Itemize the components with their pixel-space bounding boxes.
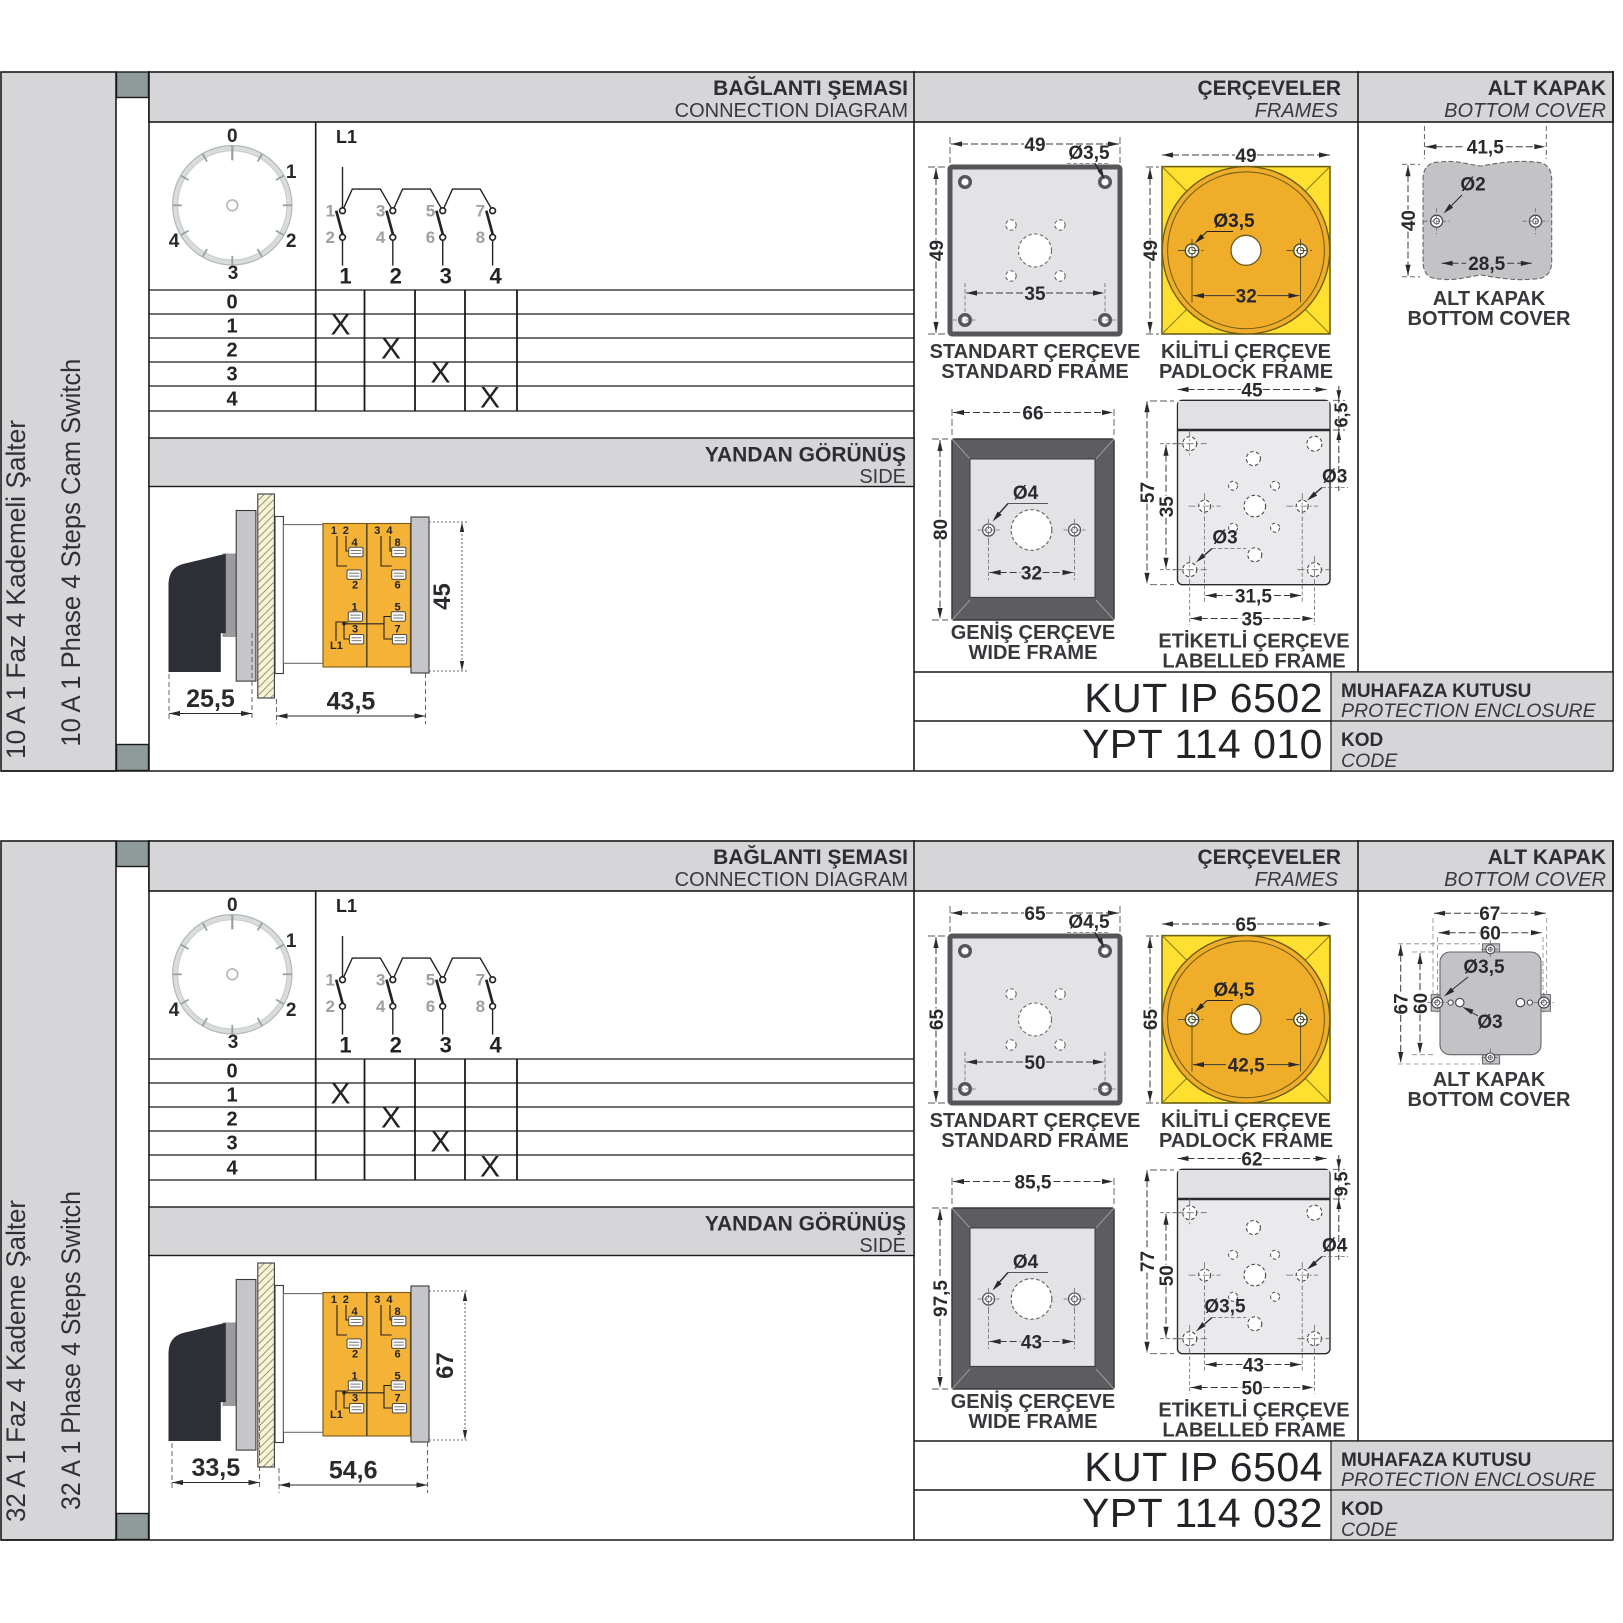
svg-text:BOTTOM COVER: BOTTOM COVER	[1444, 100, 1606, 122]
svg-text:2: 2	[226, 1109, 237, 1131]
svg-text:6: 6	[394, 1349, 400, 1361]
svg-text:X: X	[480, 382, 500, 415]
svg-text:4: 4	[226, 1158, 238, 1180]
svg-text:2: 2	[352, 580, 358, 592]
svg-text:BOTTOM COVER: BOTTOM COVER	[1408, 308, 1572, 330]
svg-text:85,5: 85,5	[1015, 1172, 1052, 1193]
svg-text:WIDE FRAME: WIDE FRAME	[969, 642, 1098, 664]
svg-text:STANDART ÇERÇEVE: STANDART ÇERÇEVE	[930, 1110, 1141, 1132]
svg-text:YPT 114 010: YPT 114 010	[1082, 721, 1323, 767]
svg-text:YANDAN GÖRÜNÜŞ: YANDAN GÖRÜNÜŞ	[705, 1213, 906, 1236]
svg-text:45: 45	[429, 583, 456, 610]
svg-text:Ø3,5: Ø3,5	[1463, 957, 1505, 978]
svg-text:CODE: CODE	[1341, 1519, 1398, 1541]
svg-text:3: 3	[228, 1032, 239, 1053]
svg-text:L1: L1	[330, 1409, 343, 1421]
svg-text:BOTTOM COVER: BOTTOM COVER	[1444, 869, 1606, 891]
svg-text:YPT 114 032: YPT 114 032	[1082, 1490, 1323, 1536]
svg-text:4: 4	[376, 228, 386, 247]
svg-text:50: 50	[1157, 1265, 1178, 1286]
svg-text:STANDARD FRAME: STANDARD FRAME	[941, 361, 1128, 383]
svg-text:4: 4	[489, 264, 502, 289]
svg-text:7: 7	[394, 624, 400, 636]
svg-text:CONNECTION DIAGRAM: CONNECTION DIAGRAM	[675, 869, 908, 891]
svg-text:50: 50	[1024, 1053, 1045, 1074]
svg-text:PROTECTION ENCLOSURE: PROTECTION ENCLOSURE	[1341, 1469, 1597, 1491]
svg-text:35: 35	[1242, 609, 1264, 630]
svg-text:4: 4	[376, 997, 386, 1016]
svg-text:2: 2	[326, 228, 335, 247]
svg-text:Ø3,5: Ø3,5	[1204, 1297, 1246, 1318]
svg-text:65: 65	[1024, 904, 1046, 925]
svg-text:ALT KAPAK: ALT KAPAK	[1433, 1069, 1546, 1091]
svg-text:BAĞLANTI ŞEMASI: BAĞLANTI ŞEMASI	[713, 76, 908, 100]
svg-text:8: 8	[394, 537, 400, 549]
svg-text:X: X	[381, 333, 401, 366]
svg-text:62: 62	[1241, 1149, 1262, 1170]
svg-text:LABELLED FRAME: LABELLED FRAME	[1162, 651, 1345, 673]
svg-text:8: 8	[476, 997, 485, 1016]
svg-text:4: 4	[352, 537, 359, 549]
svg-text:60: 60	[1411, 993, 1432, 1014]
svg-text:43: 43	[1021, 1332, 1042, 1353]
svg-text:43,5: 43,5	[327, 688, 376, 716]
svg-text:7: 7	[476, 201, 485, 220]
svg-text:L1: L1	[336, 127, 357, 147]
svg-text:2: 2	[343, 1294, 349, 1306]
svg-text:0: 0	[227, 126, 238, 147]
svg-text:5: 5	[394, 1371, 400, 1383]
svg-text:80: 80	[931, 519, 952, 540]
svg-text:Ø3: Ø3	[1477, 1012, 1502, 1033]
svg-text:54,6: 54,6	[329, 1457, 378, 1485]
svg-text:3: 3	[376, 201, 385, 220]
svg-text:1: 1	[352, 1371, 358, 1383]
svg-text:Ø2: Ø2	[1460, 175, 1485, 196]
svg-text:BAĞLANTI ŞEMASI: BAĞLANTI ŞEMASI	[713, 845, 908, 869]
svg-text:MUHAFAZA KUTUSU: MUHAFAZA KUTUSU	[1341, 681, 1531, 702]
svg-text:10 A 1 Phase 4 Steps Cam Switc: 10 A 1 Phase 4 Steps Cam Switch	[56, 359, 86, 747]
svg-text:SIDE: SIDE	[859, 466, 906, 488]
svg-text:5: 5	[394, 602, 400, 614]
svg-text:KUT IP 6504: KUT IP 6504	[1084, 1444, 1323, 1490]
svg-text:KİLİTLİ ÇERÇEVE: KİLİTLİ ÇERÇEVE	[1161, 340, 1331, 363]
svg-text:X: X	[330, 1078, 350, 1111]
svg-text:ALT KAPAK: ALT KAPAK	[1488, 846, 1606, 869]
svg-text:1: 1	[339, 1033, 351, 1058]
svg-text:49: 49	[1235, 146, 1256, 167]
svg-text:CONNECTION DIAGRAM: CONNECTION DIAGRAM	[675, 100, 908, 122]
svg-text:3: 3	[374, 525, 380, 537]
svg-text:66: 66	[1022, 403, 1043, 424]
svg-text:67: 67	[1392, 993, 1413, 1014]
svg-text:3: 3	[440, 1033, 452, 1058]
svg-text:KOD: KOD	[1341, 730, 1383, 751]
svg-text:60: 60	[1480, 924, 1501, 945]
svg-text:2: 2	[352, 1349, 358, 1361]
svg-text:3: 3	[226, 1133, 237, 1155]
svg-text:31,5: 31,5	[1235, 586, 1272, 607]
svg-text:50: 50	[1242, 1378, 1263, 1399]
svg-text:ÇERÇEVELER: ÇERÇEVELER	[1197, 846, 1341, 869]
svg-text:1: 1	[226, 316, 237, 338]
svg-text:1: 1	[326, 201, 335, 220]
svg-text:FRAMES: FRAMES	[1255, 100, 1339, 122]
svg-text:Ø4,5: Ø4,5	[1213, 980, 1255, 1001]
svg-text:2: 2	[226, 340, 237, 362]
svg-text:Ø3,5: Ø3,5	[1068, 143, 1110, 164]
svg-text:4: 4	[489, 1033, 502, 1058]
svg-text:41,5: 41,5	[1467, 138, 1504, 159]
svg-text:3: 3	[376, 970, 385, 989]
svg-text:45: 45	[1241, 380, 1263, 401]
svg-text:7: 7	[476, 970, 485, 989]
svg-text:28,5: 28,5	[1468, 254, 1505, 275]
svg-text:3: 3	[228, 263, 239, 284]
svg-text:32: 32	[1021, 563, 1042, 584]
svg-text:43: 43	[1243, 1355, 1264, 1376]
svg-text:YANDAN GÖRÜNÜŞ: YANDAN GÖRÜNÜŞ	[705, 444, 906, 467]
svg-text:32 A 1 Phase 4 Steps Switch: 32 A 1 Phase 4 Steps Switch	[56, 1191, 86, 1510]
svg-text:5: 5	[426, 201, 435, 220]
svg-text:3: 3	[226, 364, 237, 386]
svg-text:25,5: 25,5	[186, 685, 235, 713]
svg-text:GENİŞ ÇERÇEVE: GENİŞ ÇERÇEVE	[951, 621, 1115, 644]
svg-text:4: 4	[386, 1294, 393, 1306]
svg-text:Ø4: Ø4	[1013, 483, 1039, 504]
svg-text:4: 4	[226, 389, 238, 411]
svg-text:ÇERÇEVELER: ÇERÇEVELER	[1197, 77, 1341, 100]
svg-text:65: 65	[1141, 1009, 1162, 1031]
svg-text:CODE: CODE	[1341, 750, 1398, 772]
svg-text:Ø4: Ø4	[1322, 1236, 1348, 1257]
svg-text:PROTECTION ENCLOSURE: PROTECTION ENCLOSURE	[1341, 700, 1597, 722]
svg-text:STANDART ÇERÇEVE: STANDART ÇERÇEVE	[930, 341, 1141, 363]
svg-text:4: 4	[386, 525, 393, 537]
svg-text:2: 2	[286, 1000, 297, 1021]
svg-text:97,5: 97,5	[931, 1280, 952, 1317]
svg-text:3: 3	[352, 624, 358, 636]
svg-text:Ø4,5: Ø4,5	[1068, 912, 1110, 933]
svg-text:WIDE FRAME: WIDE FRAME	[969, 1411, 1098, 1433]
svg-text:X: X	[480, 1151, 500, 1184]
svg-text:1: 1	[286, 162, 297, 183]
svg-text:1: 1	[286, 931, 297, 952]
svg-text:X: X	[430, 357, 450, 390]
svg-text:KUT IP 6502: KUT IP 6502	[1084, 675, 1323, 721]
svg-text:MUHAFAZA KUTUSU: MUHAFAZA KUTUSU	[1341, 1450, 1531, 1471]
svg-text:6: 6	[426, 997, 435, 1016]
svg-text:35: 35	[1024, 284, 1046, 305]
svg-text:Ø3: Ø3	[1322, 467, 1347, 488]
svg-text:67: 67	[432, 1352, 459, 1379]
svg-text:49: 49	[1024, 135, 1045, 156]
svg-text:SIDE: SIDE	[859, 1235, 906, 1257]
svg-text:42,5: 42,5	[1228, 1055, 1265, 1076]
svg-text:KOD: KOD	[1341, 1499, 1383, 1520]
svg-text:Ø3,5: Ø3,5	[1213, 211, 1255, 232]
svg-text:4: 4	[169, 231, 180, 252]
svg-text:4: 4	[169, 1000, 180, 1021]
svg-text:4: 4	[352, 1306, 359, 1318]
svg-text:FRAMES: FRAMES	[1255, 869, 1339, 891]
svg-text:2: 2	[286, 231, 297, 252]
svg-text:X: X	[430, 1126, 450, 1159]
svg-text:2: 2	[390, 264, 402, 289]
svg-text:1: 1	[352, 602, 358, 614]
svg-text:8: 8	[476, 228, 485, 247]
svg-text:6: 6	[394, 580, 400, 592]
svg-text:ETİKETLİ ÇERÇEVE: ETİKETLİ ÇERÇEVE	[1158, 630, 1349, 653]
svg-text:0: 0	[227, 895, 238, 916]
svg-text:LABELLED FRAME: LABELLED FRAME	[1162, 1420, 1345, 1442]
svg-text:49: 49	[1141, 240, 1162, 261]
svg-text:1: 1	[331, 1294, 337, 1306]
svg-text:ALT KAPAK: ALT KAPAK	[1433, 288, 1546, 310]
svg-text:L1: L1	[330, 640, 343, 652]
svg-text:77: 77	[1138, 1251, 1159, 1272]
svg-text:57: 57	[1138, 482, 1159, 503]
svg-text:40: 40	[1399, 210, 1420, 231]
svg-text:65: 65	[927, 1009, 948, 1031]
svg-text:X: X	[330, 309, 350, 342]
svg-text:1: 1	[339, 264, 351, 289]
svg-text:2: 2	[390, 1033, 402, 1058]
svg-text:0: 0	[226, 1061, 237, 1083]
svg-text:67: 67	[1479, 904, 1500, 925]
svg-text:KİLİTLİ ÇERÇEVE: KİLİTLİ ÇERÇEVE	[1161, 1109, 1331, 1132]
svg-text:Ø3: Ø3	[1212, 528, 1237, 549]
svg-text:1: 1	[331, 525, 337, 537]
svg-text:10 A 1 Faz 4 Kademeli Şalter: 10 A 1 Faz 4 Kademeli Şalter	[1, 420, 31, 759]
svg-text:9,5: 9,5	[1332, 1171, 1352, 1196]
svg-text:65: 65	[1235, 915, 1257, 936]
svg-text:1: 1	[226, 1085, 237, 1107]
svg-text:3: 3	[352, 1393, 358, 1405]
svg-text:GENİŞ ÇERÇEVE: GENİŞ ÇERÇEVE	[951, 1390, 1115, 1413]
svg-text:7: 7	[394, 1393, 400, 1405]
svg-text:8: 8	[394, 1306, 400, 1318]
svg-text:BOTTOM COVER: BOTTOM COVER	[1408, 1089, 1572, 1111]
svg-text:6: 6	[426, 228, 435, 247]
svg-text:Ø4: Ø4	[1013, 1252, 1039, 1273]
svg-text:2: 2	[343, 525, 349, 537]
svg-text:STANDARD FRAME: STANDARD FRAME	[941, 1130, 1128, 1152]
svg-text:0: 0	[226, 292, 237, 314]
svg-text:5: 5	[426, 970, 435, 989]
svg-text:1: 1	[326, 970, 335, 989]
svg-text:ALT KAPAK: ALT KAPAK	[1488, 77, 1606, 100]
svg-text:3: 3	[374, 1294, 380, 1306]
svg-text:L1: L1	[336, 896, 357, 916]
svg-text:49: 49	[927, 240, 948, 261]
svg-text:2: 2	[326, 997, 335, 1016]
svg-text:32 A 1 Faz 4 Kademe Şalter: 32 A 1 Faz 4 Kademe Şalter	[1, 1200, 31, 1522]
svg-text:35: 35	[1157, 496, 1178, 518]
svg-text:33,5: 33,5	[191, 1454, 240, 1482]
svg-text:3: 3	[440, 264, 452, 289]
svg-text:32: 32	[1236, 286, 1257, 307]
svg-text:X: X	[381, 1102, 401, 1135]
svg-text:6,5: 6,5	[1332, 402, 1352, 427]
svg-text:ETİKETLİ ÇERÇEVE: ETİKETLİ ÇERÇEVE	[1158, 1399, 1349, 1422]
